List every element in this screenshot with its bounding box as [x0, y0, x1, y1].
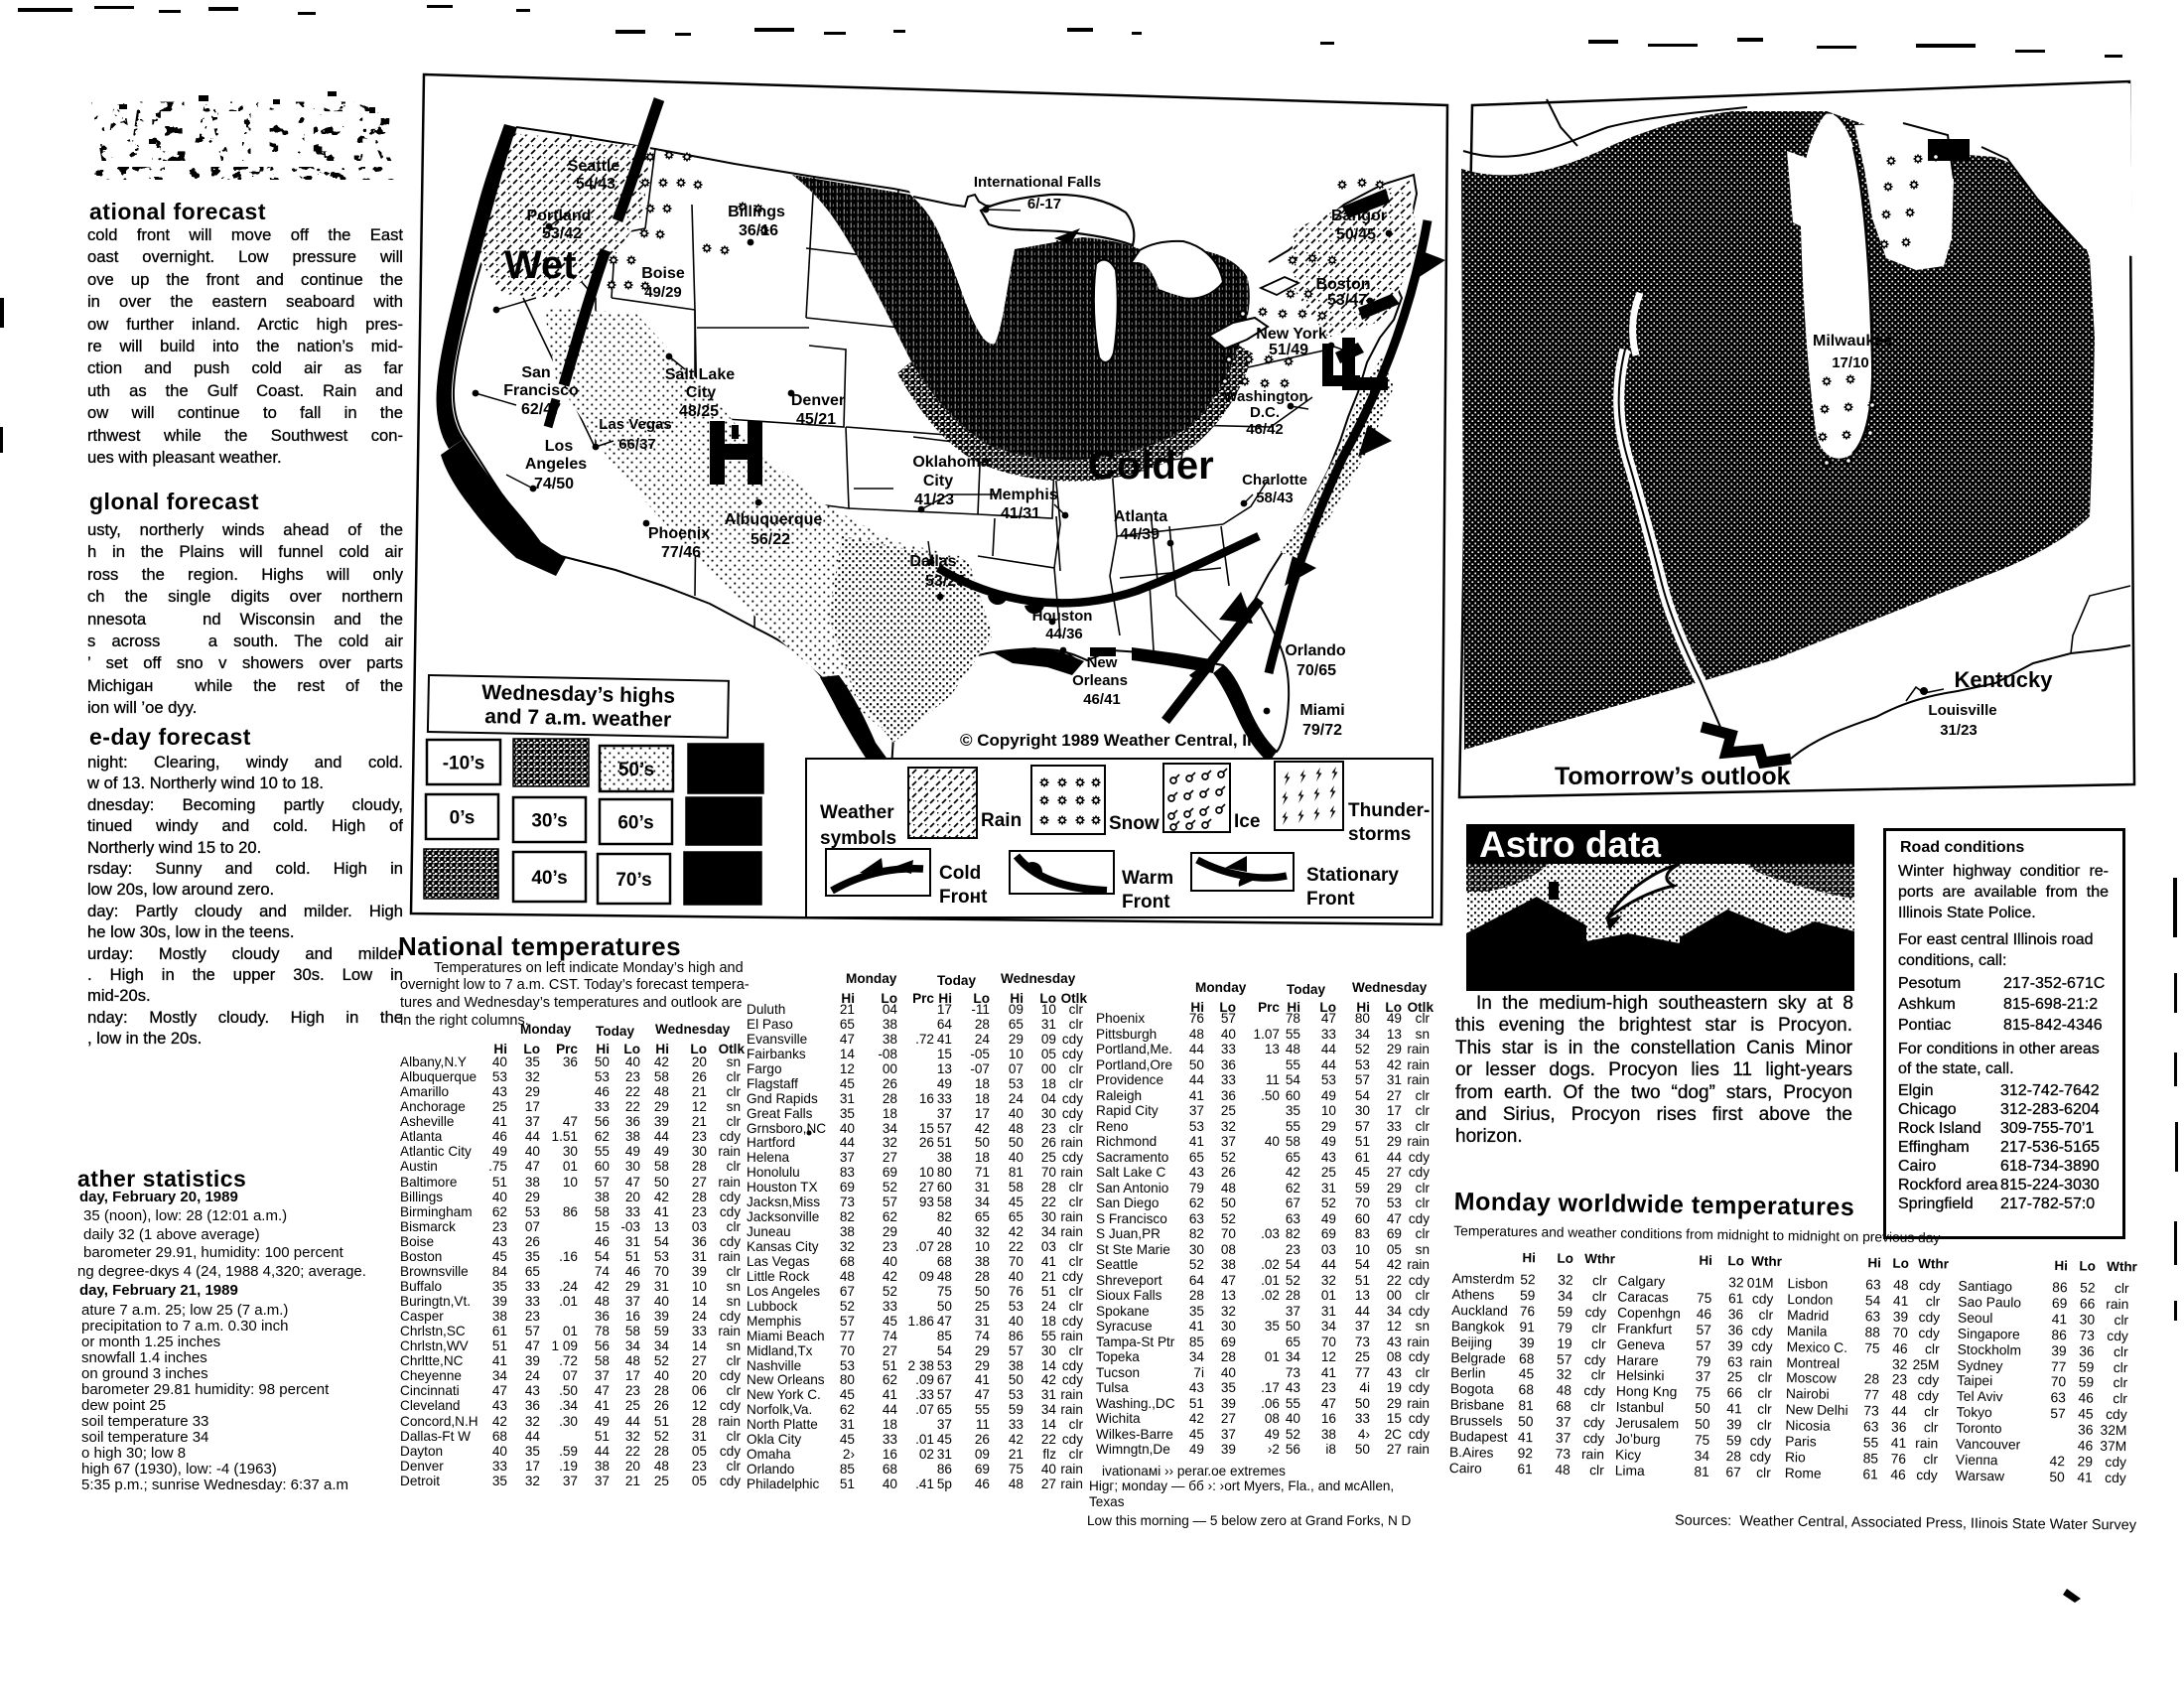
svg-text:41/23: 41/23: [914, 492, 954, 508]
svg-text:31/23: 31/23: [1940, 722, 1978, 739]
svg-text:79/72: 79/72: [1302, 722, 1342, 739]
svg-text:Portland: Portland: [527, 208, 592, 224]
svg-text:Wednesday’s highs: Wednesday’s highs: [481, 681, 675, 708]
svg-text:Atlanta: Atlanta: [1114, 508, 1167, 525]
svg-text:storms: storms: [1348, 824, 1411, 845]
svg-text:17/10: 17/10: [1832, 354, 1869, 371]
svg-text:54/43: 54/43: [576, 176, 615, 193]
svg-text:Milwaukeе: Milwaukeе: [1813, 333, 1892, 350]
svg-text:53/42: 53/42: [542, 225, 582, 242]
svg-text:Front: Front: [1306, 889, 1355, 910]
svg-text:Phoenix: Phoenix: [648, 525, 710, 542]
svg-text:Froнt: Froнt: [939, 887, 988, 908]
svg-text:58/43: 58/43: [1256, 490, 1294, 506]
svg-text:Ice: Ice: [1234, 811, 1260, 832]
svg-text:Angeles: Angeles: [525, 456, 587, 473]
svg-text:International Falls: International Falls: [974, 174, 1101, 191]
svg-text:Thunder-: Thunder-: [1348, 800, 1430, 821]
svg-text:Salt Lake: Salt Lake: [665, 366, 735, 383]
svg-text:D.C.: D.C.: [1250, 404, 1280, 421]
svg-text:77/46: 77/46: [661, 544, 701, 561]
svg-text:70/65: 70/65: [1297, 662, 1336, 679]
svg-text:Charlotte: Charlotte: [1242, 472, 1307, 489]
svg-text:Rain: Rain: [981, 810, 1022, 831]
svg-text:62/47: 62/47: [521, 401, 561, 418]
svg-text:Cold: Cold: [939, 863, 981, 884]
svg-text:50’s: 50’s: [618, 760, 654, 780]
svg-text:51/49: 51/49: [1269, 342, 1308, 358]
svg-text:36/16: 36/16: [739, 222, 778, 239]
svg-text:49/29: 49/29: [644, 284, 682, 301]
svg-text:Colder: Colder: [1088, 444, 1214, 488]
svg-text:46/41: 46/41: [1083, 691, 1121, 708]
svg-text:Bangor: Bangor: [1331, 208, 1387, 224]
svg-text:Houston: Houston: [1032, 608, 1093, 625]
svg-text:Francisco: Francisco: [503, 382, 579, 399]
svg-text:symbols: symbols: [820, 828, 896, 849]
svg-text:Albuquerque: Albuquerque: [725, 511, 823, 528]
svg-text:40’s: 40’s: [531, 868, 567, 889]
svg-text:Louisville: Louisville: [1928, 702, 1996, 719]
svg-text:Miami: Miami: [1299, 702, 1344, 719]
svg-text:New: New: [1087, 654, 1118, 671]
svg-text:Snow: Snow: [1109, 813, 1160, 834]
svg-text:City: City: [923, 473, 953, 490]
svg-text:53/47: 53/47: [1327, 292, 1367, 309]
svg-text:Los: Los: [545, 438, 574, 455]
svg-text:Tomorrow’s outlook: Tomorrow’s outlook: [1555, 763, 1791, 790]
svg-text:41/31: 41/31: [1001, 505, 1040, 522]
svg-text:53/25: 53/25: [925, 573, 965, 590]
svg-text:Stationary: Stationary: [1306, 865, 1399, 886]
svg-text:Oklahoma: Oklahoma: [912, 454, 989, 471]
svg-text:and 7 a.m. weather: and 7 a.m. weather: [484, 705, 671, 732]
svg-text:Boston: Boston: [1315, 276, 1370, 293]
svg-text:Astro data: Astro data: [1479, 824, 1661, 865]
svg-text:60’s: 60’s: [617, 813, 653, 834]
svg-text:Las Vegas: Las Vegas: [599, 416, 671, 433]
svg-text:0’s: 0’s: [450, 808, 476, 829]
svg-text:WEATHER: WEATHER: [91, 84, 394, 180]
svg-text:Billings: Billings: [728, 204, 785, 220]
svg-text:© Copyright 1989 Weather Centr: © Copyright 1989 Weather Central, Inc: [960, 731, 1267, 750]
svg-text:Wet: Wet: [504, 243, 577, 287]
svg-text:Warm: Warm: [1122, 868, 1173, 889]
svg-text:Weather: Weather: [820, 802, 894, 823]
svg-text:-10’s: -10’s: [443, 754, 485, 774]
svg-text:45/21: 45/21: [796, 411, 836, 428]
svg-text:Denver: Denver: [791, 392, 845, 409]
svg-text:66/37: 66/37: [618, 436, 656, 453]
svg-text:Kentucky: Kentucky: [1954, 667, 2053, 692]
svg-text:Orleans: Orleans: [1072, 672, 1128, 689]
svg-text:Washington: Washington: [1223, 388, 1307, 405]
svg-text:Front: Front: [1122, 892, 1170, 913]
svg-text:46/42: 46/42: [1246, 421, 1284, 438]
svg-text:74/50: 74/50: [534, 476, 574, 492]
svg-text:Boise: Boise: [641, 265, 685, 282]
svg-text:44/39: 44/39: [1120, 526, 1160, 543]
svg-text:56/22: 56/22: [751, 531, 790, 548]
svg-text:50/45: 50/45: [1336, 226, 1376, 243]
svg-text:Memphis: Memphis: [989, 487, 1057, 503]
svg-text:Orlando: Orlando: [1285, 642, 1346, 659]
svg-text:New York: New York: [1256, 326, 1327, 343]
svg-text:6/-17: 6/-17: [1027, 196, 1061, 212]
svg-text:City: City: [686, 384, 716, 401]
svg-text:48/25: 48/25: [679, 403, 719, 420]
svg-text:Dallas: Dallas: [909, 553, 956, 570]
svg-text:30’s: 30’s: [531, 811, 567, 832]
svg-text:44/36: 44/36: [1045, 626, 1083, 642]
svg-text:San: San: [521, 364, 550, 381]
svg-text:70’s: 70’s: [615, 870, 651, 891]
svg-text:Seattle: Seattle: [568, 158, 620, 175]
